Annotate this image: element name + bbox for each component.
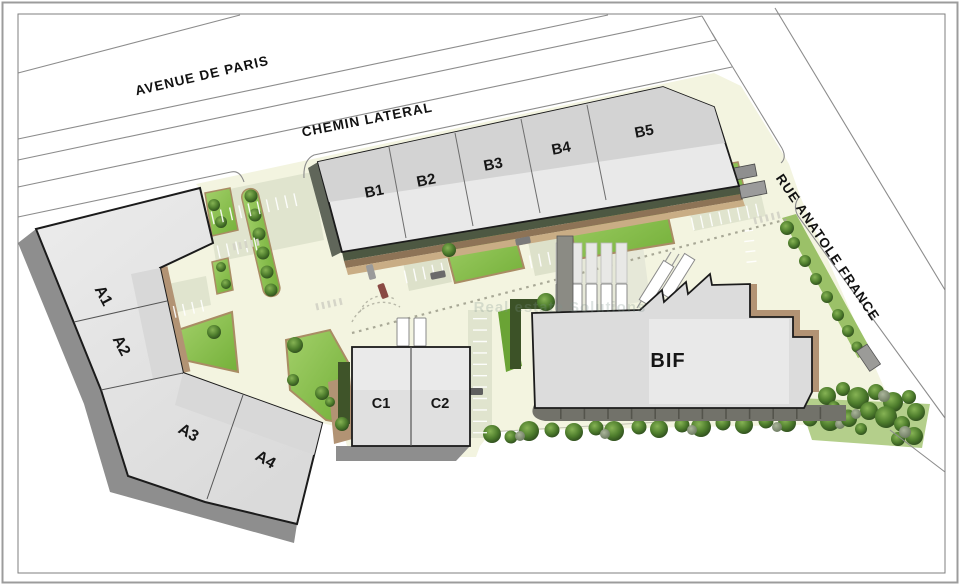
unit-label-c2: C2 (431, 396, 450, 412)
building-c-shadow (336, 446, 470, 461)
unit-label-c1: C1 (372, 396, 391, 412)
unit-label-b2: B2 (415, 170, 437, 190)
unit-label-b1: B1 (363, 181, 385, 201)
site-plan-drawing: A1 A2 A3 A4 B1 B2 B3 B4 B5 C1 C2 (0, 0, 960, 585)
bif-label: BIF (650, 350, 685, 372)
unit-label-b5: B5 (633, 121, 655, 141)
building-c: C1 C2 (336, 347, 470, 461)
unit-label-b3: B3 (482, 154, 504, 174)
watermark: Real estate Solutions (474, 299, 647, 316)
site-plan-page: A1 A2 A3 A4 B1 B2 B3 B4 B5 C1 C2 (0, 0, 960, 585)
